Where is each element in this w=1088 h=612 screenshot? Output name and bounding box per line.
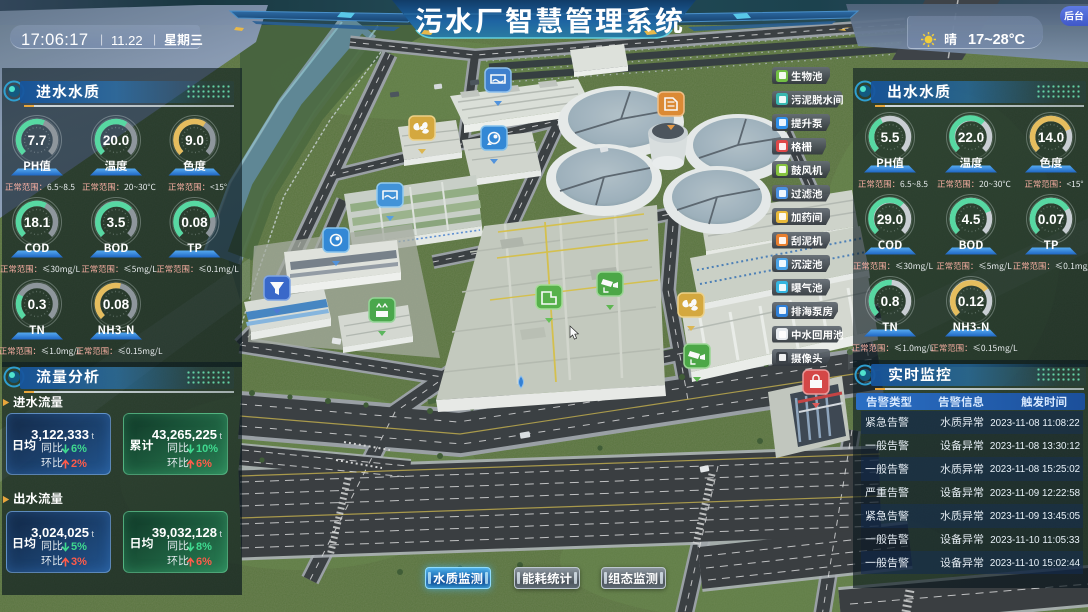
svg-text:0.07: 0.07 <box>1038 212 1064 227</box>
svg-text:4.5: 4.5 <box>962 212 981 227</box>
svg-text:0.12: 0.12 <box>958 294 984 309</box>
svg-text:14.0: 14.0 <box>1038 130 1064 145</box>
svg-text:5.5: 5.5 <box>881 130 900 145</box>
svg-text:0.8: 0.8 <box>881 294 900 309</box>
svg-text:29.0: 29.0 <box>877 212 903 227</box>
svg-text:22.0: 22.0 <box>958 130 984 145</box>
